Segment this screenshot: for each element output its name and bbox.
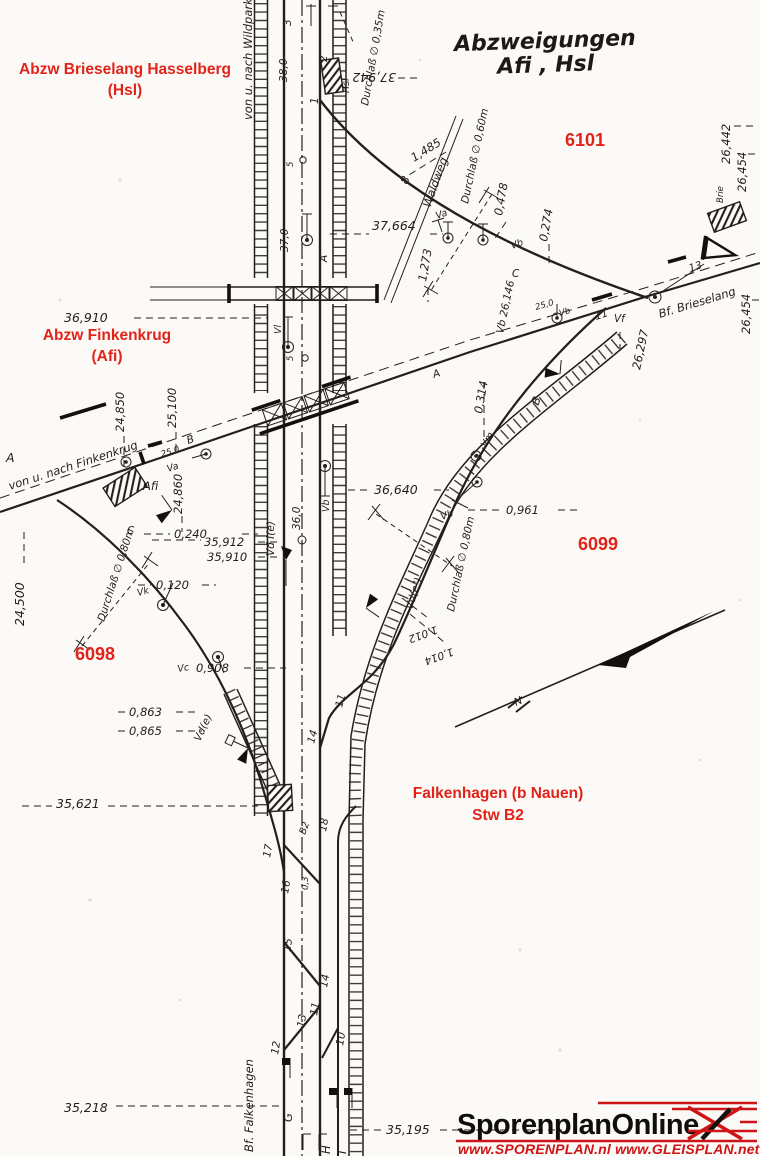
label-von-nach-wildpark: von u. nach Wildpark (241, 0, 255, 120)
label-dist-0240: 0,240 (174, 527, 207, 541)
label-switch-12: 12 (269, 1040, 283, 1056)
label-switch-15: 15 (281, 937, 295, 953)
label-dist-0478: 0,478 (491, 182, 511, 217)
north-arrow (455, 610, 725, 727)
label-signal-vk: Vk (136, 585, 151, 599)
label-halfkm-365: 5 (286, 356, 296, 361)
label-switch-3: 3 (282, 19, 294, 26)
label-signal-vb-2: Vb (558, 306, 572, 319)
label-dist-0314: 0,314 (471, 380, 491, 415)
label-track-h: H (319, 1145, 333, 1154)
hsl-signal-box (321, 58, 344, 94)
afi-signal-box (103, 467, 147, 506)
label-km-37: 37,0 (279, 228, 291, 252)
label-km-26297: 26,297 (629, 328, 651, 371)
label-switch-16: 16 (279, 879, 293, 895)
label-km-26454-top: 26,454 (735, 152, 749, 192)
label-signal-vf: Vf (614, 313, 627, 325)
label-point-a: A (5, 450, 15, 465)
label-bf-falkenhagen: Bf. Falkenhagen (242, 1059, 256, 1152)
label-signal-va-afi: Va (166, 461, 181, 475)
label-grad-03: 0,3 (301, 876, 311, 890)
label-signal-vb-main: Vb (321, 499, 332, 512)
label-hsl-box: Hsl (341, 78, 352, 93)
label-switch-17: 17 (261, 843, 275, 859)
red-label-falkenhagen-line2: Stw B2 (472, 807, 524, 824)
red-label-hsl-line1: Abzw Brieselang Hasselberg (19, 61, 231, 78)
label-brie-box: Brie (716, 186, 726, 203)
red-label-hsl-line2: (Hsl) (108, 82, 142, 99)
label-track-i: I (335, 1150, 349, 1154)
label-signal-vc: Vc (177, 662, 191, 675)
label-km-38: 38,0 (278, 58, 290, 82)
label-switch-10: 10 (334, 1031, 348, 1047)
label-afi-box: Afi (142, 479, 159, 493)
label-km-35195: 35,195 (386, 1122, 430, 1137)
red-label-6098: 6098 (75, 644, 115, 664)
red-label-afi-line1: Abzw Finkenkrug (43, 327, 171, 344)
label-point-b-afi: B (185, 433, 196, 447)
red-label-6099: 6099 (578, 534, 618, 554)
road-bridge-upper (150, 284, 378, 303)
label-durchlass-080-left: Durchlaß ∅ 0,80m (95, 527, 136, 623)
label-switch-11: 11 (308, 1001, 322, 1016)
paper-noise (59, 59, 742, 1052)
label-km-36: 36,0 (291, 506, 303, 530)
label-dist-1014: 1,014 (423, 645, 455, 667)
label-switch-8: 8 (397, 174, 413, 187)
label-signal-vde: Vd(e) (192, 712, 215, 743)
stw-b2-box (267, 784, 292, 811)
label-point-c-curve: C (512, 268, 520, 280)
label-dist-0863: 0,863 (129, 705, 162, 719)
label-km-36910: 36,910 (64, 310, 108, 325)
label-durchlass-060: Durchlaß ∅ 0,60m (459, 107, 491, 204)
scanned-track-plan: von u. nach Wildpark Durchlaß ∅ 0,35m Hs… (0, 0, 760, 1156)
brieselang-box (708, 202, 747, 232)
label-km-35621: 35,621 (56, 796, 100, 811)
plan-title: Abzweigungen Afi , Hsl (452, 26, 637, 81)
label-dist-1012: 1,012 (406, 623, 439, 645)
label-km-36640: 36,640 (374, 482, 418, 497)
label-km-24850: 24,850 (113, 392, 127, 432)
label-km-35910: 35,910 (207, 550, 247, 564)
label-km-35218: 35,218 (64, 1100, 108, 1115)
label-km-24500: 24,500 (12, 582, 27, 626)
label-dist-0274: 0,274 (536, 208, 556, 243)
label-switch-1: 1 (309, 97, 321, 104)
label-switch-13-brie: 13 (687, 259, 703, 275)
plan-title-line2: Afi , Hsl (495, 51, 595, 79)
label-signal-vl: Vl (273, 325, 284, 334)
label-km-24860: 24,860 (171, 474, 185, 514)
label-track-g: G (281, 1113, 295, 1122)
label-grad-25-0-a: 25,0 (160, 444, 181, 459)
sporenplan-logo: SporenplanOnline www.SPORENPLAN.nl www.G… (456, 1103, 760, 1156)
label-durchlass-080-right: Durchlaß ∅ 0,80m (445, 515, 477, 612)
label-dist-0120: 0,120 (156, 578, 189, 592)
label-dist-1273: 1,273 (415, 248, 435, 283)
label-dist-0908: 0,908 (196, 661, 229, 675)
label-signal-vd2: Vd(e²) (403, 576, 425, 611)
label-km-37942: 37,942 (352, 70, 396, 85)
label-switch-18: 18 (317, 817, 331, 833)
label-vb-26146: Vb 26,146 (494, 279, 517, 335)
label-switch-14-6099: 14 (305, 729, 320, 745)
label-km-26442: 26,442 (719, 124, 733, 164)
label-point-b-6099: B (528, 394, 544, 407)
label-switch-14: 14 (318, 973, 332, 988)
label-dist-0865: 0,865 (129, 724, 162, 738)
label-km-35912: 35,912 (204, 535, 244, 549)
label-dist-0961: 0,961 (506, 503, 539, 517)
label-durchlass-035: Durchlaß ∅ 0,35m (359, 9, 388, 107)
track-plan-drawing: von u. nach Wildpark Durchlaß ∅ 0,35m Hs… (0, 0, 760, 1156)
label-waldweg: Waldweg (420, 155, 451, 209)
label-track-a-diag: A (430, 367, 441, 381)
label-km-26454-low: 26,454 (739, 294, 753, 334)
label-b2-box: B2 (297, 820, 312, 836)
logo-wordmark: SporenplanOnline (457, 1109, 699, 1141)
red-overlay-labels: Abzw Brieselang Hasselberg (Hsl) 6101 Ab… (19, 61, 618, 824)
label-track-a-main: A (318, 255, 330, 263)
buildings (103, 58, 746, 812)
distant-signal-discs (121, 157, 661, 673)
label-grad-25-0-b: 25,0 (534, 298, 555, 313)
label-switch-11-6099: 11 (333, 693, 348, 709)
annotations: von u. nach Wildpark Durchlaß ∅ 0,35m Hs… (5, 0, 753, 1154)
label-km-37664: 37,664 (372, 218, 416, 233)
label-km-25100: 25,100 (165, 388, 179, 428)
red-label-6101: 6101 (565, 130, 605, 150)
label-halfkm-375: 5 (286, 162, 296, 167)
label-switch-13: 13 (295, 1013, 309, 1028)
red-label-afi-line2: (Afi) (92, 348, 123, 365)
logo-urls: www.SPORENPLAN.nl www.GLEISPLAN.net (458, 1141, 760, 1156)
label-signal-vd1: Vd I(e) (265, 521, 277, 556)
red-label-falkenhagen-line1: Falkenhagen (b Nauen) (413, 785, 584, 802)
label-switch-2: 2 (318, 55, 330, 62)
